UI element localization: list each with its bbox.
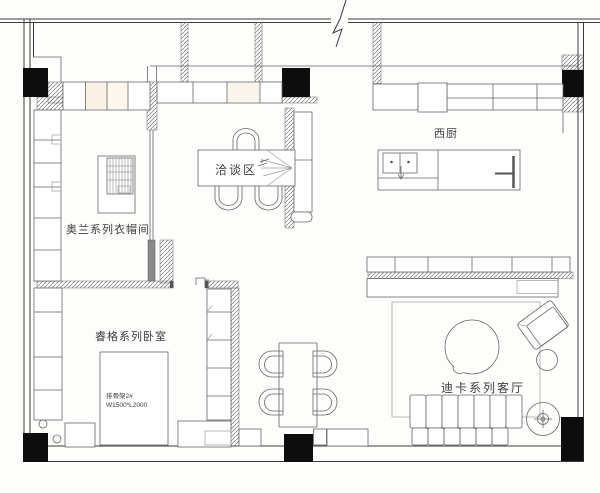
column (562, 70, 584, 97)
sink-drain (407, 161, 410, 164)
dining-area (239, 343, 368, 446)
mullion (181, 23, 188, 83)
sofa (410, 395, 522, 445)
mullion (255, 23, 262, 83)
dining-table (279, 343, 317, 427)
wardrobe-left (34, 110, 61, 281)
base-cabinet (314, 429, 327, 445)
bed-annotation-line2: W1500*L2000 (106, 402, 148, 409)
bed-annotation-line1: 排骨架2# (106, 391, 133, 400)
round-table-target (527, 403, 560, 436)
kitchen-island (378, 150, 520, 190)
wall-break-mark (333, 0, 346, 47)
nightstand (65, 423, 95, 447)
base-cabinet (327, 429, 368, 446)
knob (53, 435, 61, 443)
living-room: 迪卡系列客厅 (367, 257, 570, 445)
floor-plan-drawing: 奥兰系列衣帽间 洽谈区 西厨 (0, 0, 600, 493)
mullion (373, 23, 381, 84)
chair (255, 186, 282, 210)
nightstand (178, 421, 231, 447)
island-dresser (98, 156, 135, 213)
column (561, 417, 584, 461)
top-cabinet-run (157, 82, 282, 103)
cloakroom: 奥兰系列衣帽间 (34, 82, 155, 281)
base-cabinet (239, 429, 261, 446)
bedroom: 睿格系列卧室 排骨架2# W1500*L2000 (34, 278, 231, 447)
column (23, 68, 48, 97)
sink-drain (390, 161, 393, 164)
room-label-living-room: 迪卡系列客厅 (441, 380, 525, 395)
column (284, 434, 313, 462)
window-mullions (181, 23, 381, 84)
kitchen-appliance (418, 83, 447, 112)
tall-cabinet (294, 112, 312, 212)
wall-panel (148, 240, 155, 281)
wardrobe-left-bedroom (34, 288, 62, 420)
room-label-kitchen: 西厨 (434, 127, 458, 140)
kitchen-counter-run (373, 84, 563, 110)
room-label-meeting-area: 洽谈区 (215, 163, 257, 177)
chair (215, 186, 242, 210)
armchair (517, 300, 570, 351)
knob (39, 420, 47, 428)
west-kitchen: 西厨 (373, 83, 563, 190)
round-rug (445, 320, 499, 374)
floor-plan: 奥兰系列衣帽间 洽谈区 西厨 (0, 0, 600, 493)
column (23, 433, 48, 462)
wardrobe-right (207, 289, 231, 420)
room-label-cloakroom: 奥兰系列衣帽间 (66, 222, 150, 236)
column (282, 68, 310, 97)
sliding-door-leaf (150, 130, 153, 240)
chair (233, 129, 259, 151)
sideboard (367, 279, 558, 298)
room-label-bedroom: 睿格系列卧室 (95, 329, 167, 343)
tv-cabinet (367, 257, 570, 272)
